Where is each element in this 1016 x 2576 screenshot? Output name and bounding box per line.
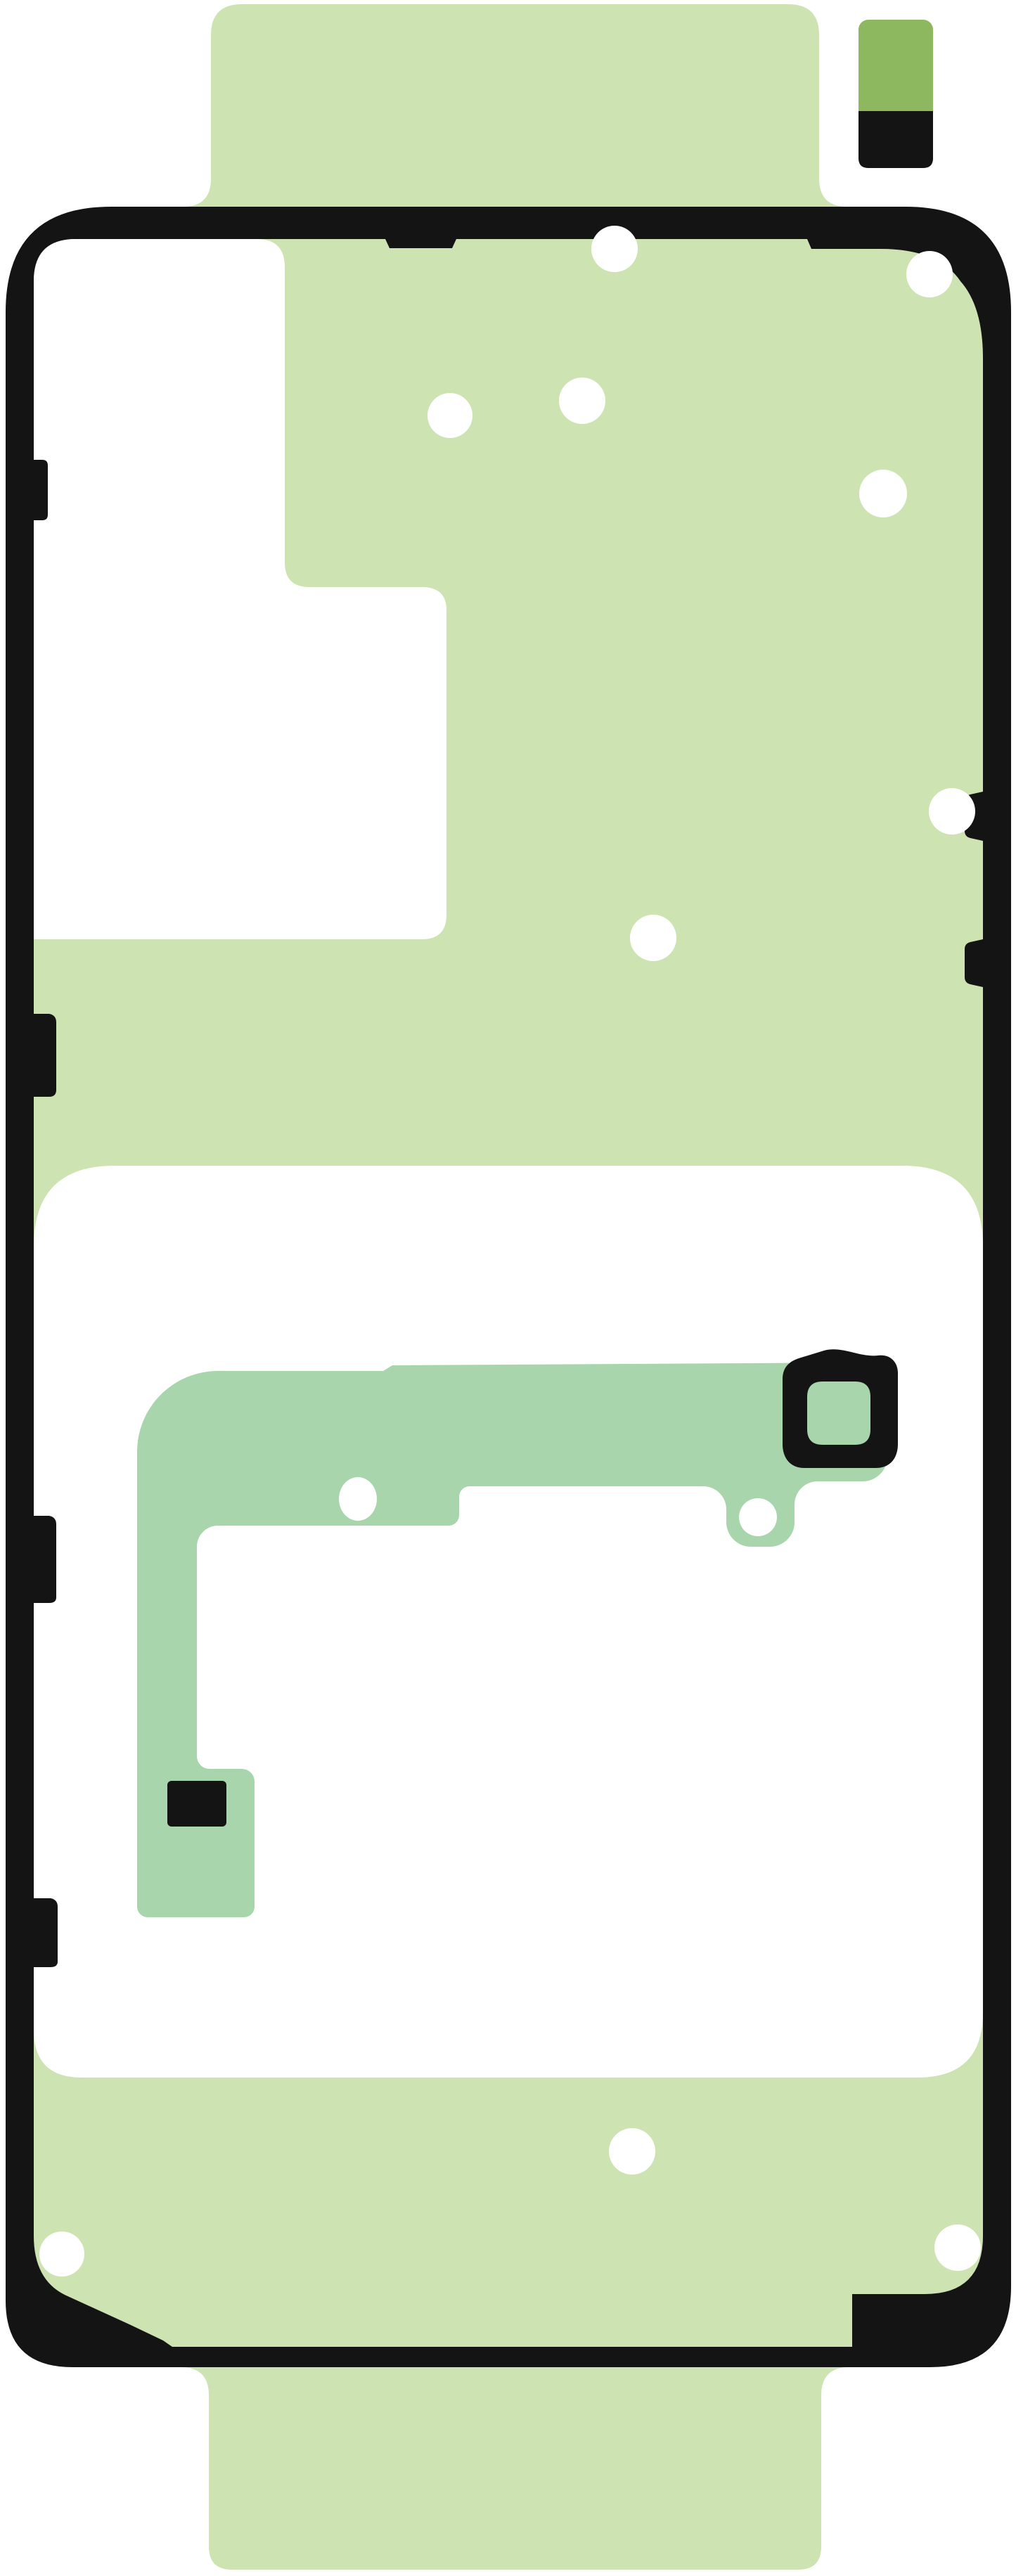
camera-ring-opening <box>807 1382 870 1445</box>
connector-marker-square <box>167 1781 226 1827</box>
screw-hole <box>906 251 953 297</box>
screw-hole <box>630 915 676 961</box>
left-edge-notch <box>34 1516 56 1603</box>
left-edge-notch <box>34 1898 58 1967</box>
adhesive-strip-tab-hole <box>739 1498 777 1536</box>
alignment-pill-black <box>859 111 933 168</box>
screw-hole <box>929 788 975 835</box>
screw-hole <box>591 226 638 272</box>
top-pull-tab <box>183 4 847 207</box>
right-edge-notch <box>965 939 983 987</box>
screw-hole <box>559 378 605 424</box>
screw-hole <box>609 2128 655 2175</box>
left-edge-notch <box>34 460 48 520</box>
screw-hole <box>427 393 472 438</box>
left-edge-notch <box>34 1014 56 1097</box>
screw-hole <box>934 2224 981 2271</box>
screw-hole <box>859 470 907 517</box>
screw-hole <box>39 2232 84 2276</box>
adhesive-strip-hole <box>339 1477 377 1521</box>
bottom-pull-tab <box>181 2367 849 2570</box>
product-photo-canvas <box>0 0 1016 2576</box>
product-image <box>0 0 1016 2576</box>
